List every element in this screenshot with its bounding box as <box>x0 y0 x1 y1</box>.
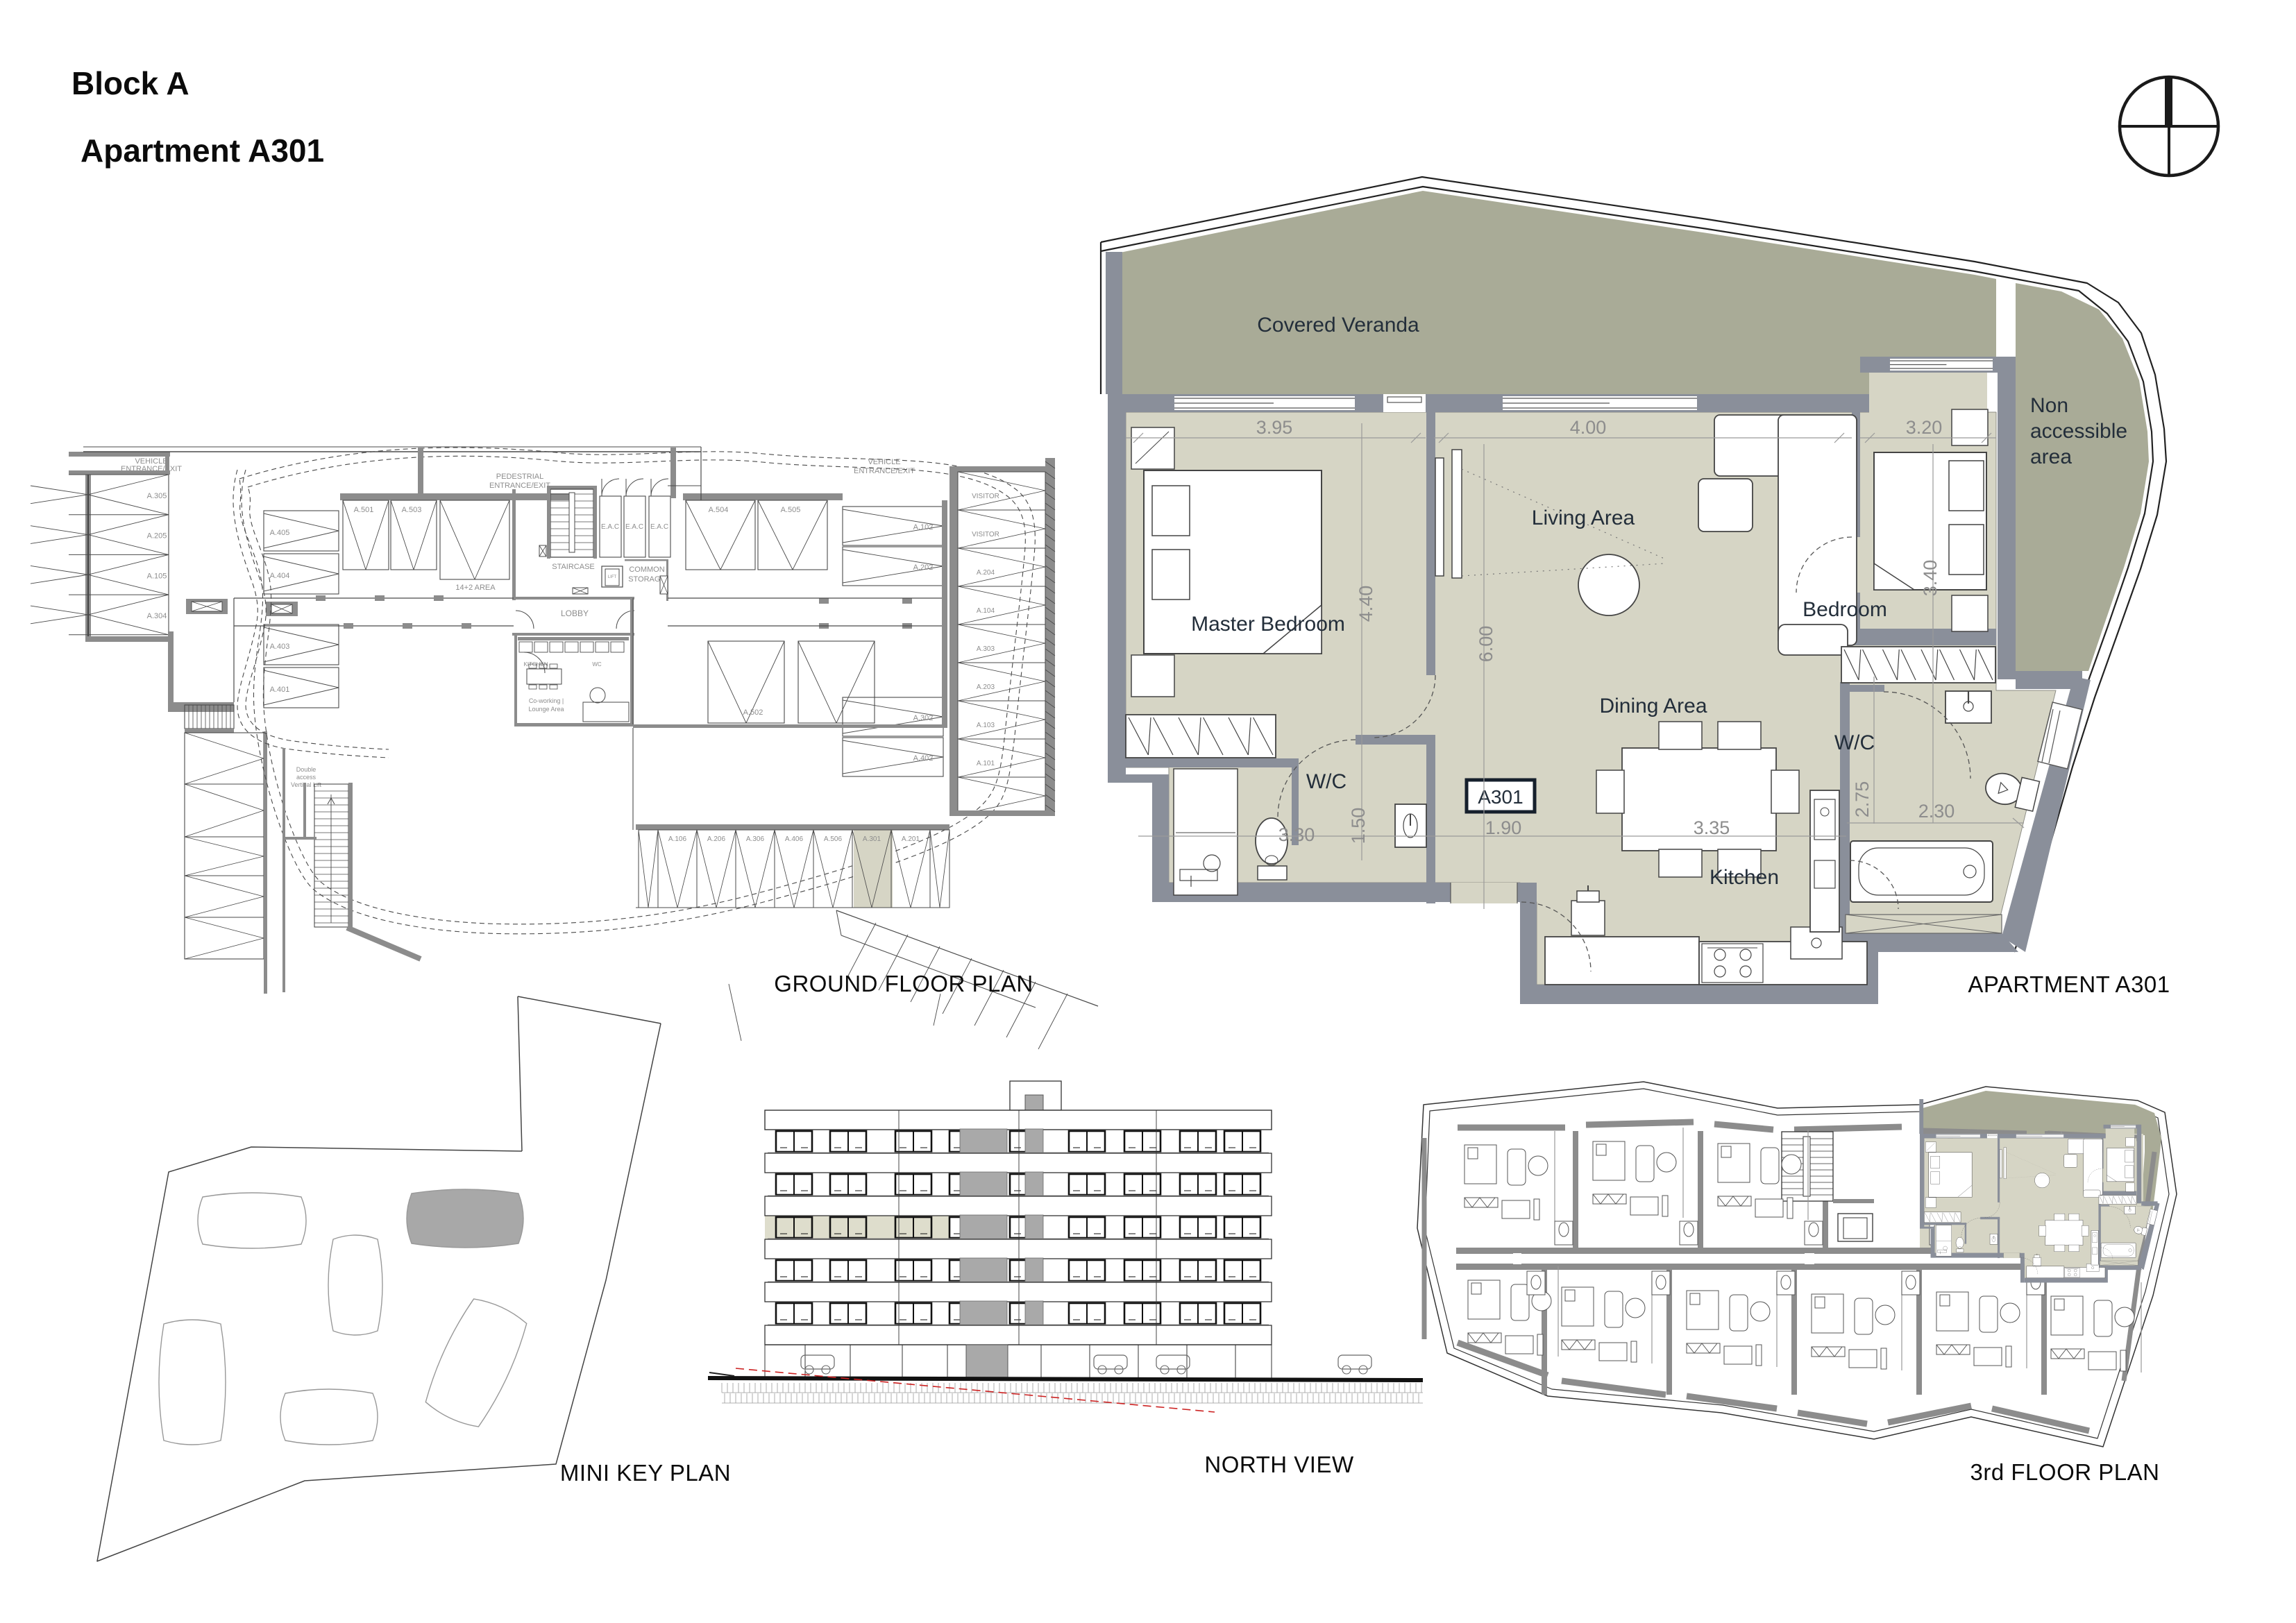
svg-text:A.504: A.504 <box>709 506 729 514</box>
svg-text:A.404: A.404 <box>270 572 290 580</box>
svg-text:KITCHEN: KITCHEN <box>523 661 548 668</box>
svg-text:A.304: A.304 <box>147 612 167 620</box>
svg-text:A.506: A.506 <box>824 835 843 843</box>
svg-text:A.102: A.102 <box>913 523 934 532</box>
svg-text:WC: WC <box>592 661 602 668</box>
svg-text:A.201: A.201 <box>902 835 920 843</box>
svg-text:A.405: A.405 <box>270 529 290 537</box>
svg-text:A.503: A.503 <box>402 506 422 514</box>
svg-text:Lounge Area: Lounge Area <box>528 706 564 713</box>
svg-text:A.204: A.204 <box>977 569 995 577</box>
svg-text:Apartment A301: Apartment A301 <box>81 133 324 169</box>
svg-text:A.205: A.205 <box>147 532 167 541</box>
svg-text:MINI KEY PLAN: MINI KEY PLAN <box>560 1460 731 1486</box>
svg-text:COMMON: COMMON <box>629 566 664 574</box>
svg-text:1.90: 1.90 <box>1485 817 1522 838</box>
svg-text:Co-working |: Co-working | <box>529 697 564 704</box>
svg-text:A.302: A.302 <box>913 714 934 722</box>
svg-text:E.A.C: E.A.C <box>601 523 619 531</box>
svg-text:A.206: A.206 <box>707 835 726 843</box>
svg-text:STAIRCASE: STAIRCASE <box>552 563 595 571</box>
svg-text:A301: A301 <box>1478 786 1523 808</box>
svg-text:E.A.C: E.A.C <box>625 523 643 531</box>
svg-text:A.403: A.403 <box>270 643 290 651</box>
svg-text:A.103: A.103 <box>977 722 995 729</box>
svg-text:A.406: A.406 <box>785 835 804 843</box>
svg-text:ENTRANCE/EXIT: ENTRANCE/EXIT <box>121 465 182 473</box>
svg-text:2.30: 2.30 <box>1918 801 1955 822</box>
svg-text:Covered Veranda: Covered Veranda <box>1257 314 1419 337</box>
svg-text:NORTH VIEW: NORTH VIEW <box>1204 1452 1354 1477</box>
svg-text:W/C: W/C <box>1306 770 1347 793</box>
svg-text:access: access <box>296 774 316 781</box>
svg-text:E.A.C: E.A.C <box>650 523 668 531</box>
svg-text:4.00: 4.00 <box>1570 417 1607 438</box>
svg-text:A.104: A.104 <box>977 607 995 615</box>
svg-text:Block A: Block A <box>71 65 189 101</box>
svg-text:A.401: A.401 <box>270 686 290 694</box>
svg-text:area: area <box>2030 445 2072 468</box>
svg-text:A.301: A.301 <box>863 835 881 843</box>
svg-text:A.402: A.402 <box>913 754 934 763</box>
svg-text:W/C: W/C <box>1834 731 1875 754</box>
svg-text:Dining Area: Dining Area <box>1599 695 1707 717</box>
svg-text:4.40: 4.40 <box>1356 586 1376 622</box>
svg-text:Kitchen: Kitchen <box>1710 866 1779 889</box>
svg-text:3rd FLOOR PLAN: 3rd FLOOR PLAN <box>1970 1459 2160 1485</box>
svg-text:accessible: accessible <box>2030 420 2127 443</box>
svg-text:A.501: A.501 <box>354 506 374 514</box>
svg-text:A.202: A.202 <box>913 563 934 572</box>
svg-text:PEDESTRIAL: PEDESTRIAL <box>496 473 543 481</box>
svg-text:ENTRANCE/EXIT: ENTRANCE/EXIT <box>854 467 915 475</box>
svg-text:A.505: A.505 <box>781 506 801 514</box>
svg-text:APARTMENT A301: APARTMENT A301 <box>1968 971 2170 997</box>
svg-text:A.305: A.305 <box>147 492 167 500</box>
svg-text:14+2 AREA: 14+2 AREA <box>455 584 496 592</box>
svg-text:Double: Double <box>296 766 316 773</box>
svg-text:6.00: 6.00 <box>1476 626 1496 663</box>
svg-text:LOBBY: LOBBY <box>561 609 589 618</box>
svg-text:3.40: 3.40 <box>1920 560 1941 597</box>
svg-text:Master Bedroom: Master Bedroom <box>1191 613 1345 636</box>
svg-text:Non: Non <box>2030 394 2068 417</box>
svg-text:LIFT: LIFT <box>608 575 617 579</box>
svg-text:3.20: 3.20 <box>1906 417 1943 438</box>
svg-text:3.30: 3.30 <box>1278 824 1315 845</box>
svg-text:3.35: 3.35 <box>1694 817 1730 838</box>
svg-text:Bedroom: Bedroom <box>1803 598 1887 621</box>
svg-text:A.502: A.502 <box>743 708 763 717</box>
svg-text:GROUND FLOOR PLAN: GROUND FLOOR PLAN <box>774 971 1033 996</box>
svg-text:2.75: 2.75 <box>1852 781 1873 818</box>
svg-text:3.95: 3.95 <box>1256 417 1293 438</box>
svg-text:A.303: A.303 <box>977 645 995 653</box>
svg-text:A.101: A.101 <box>977 760 995 767</box>
svg-text:A.203: A.203 <box>977 683 995 691</box>
svg-text:VISITOR: VISITOR <box>972 493 999 500</box>
svg-text:ENTRANCE/EXIT: ENTRANCE/EXIT <box>489 482 550 490</box>
svg-text:Vertical Lift: Vertical Lift <box>291 781 322 788</box>
svg-text:1.50: 1.50 <box>1348 808 1369 844</box>
svg-text:A.105: A.105 <box>147 572 167 580</box>
svg-text:Living Area: Living Area <box>1532 507 1635 529</box>
svg-text:A.106: A.106 <box>668 835 687 843</box>
svg-text:VISITOR: VISITOR <box>972 531 999 538</box>
svg-text:A.306: A.306 <box>746 835 765 843</box>
